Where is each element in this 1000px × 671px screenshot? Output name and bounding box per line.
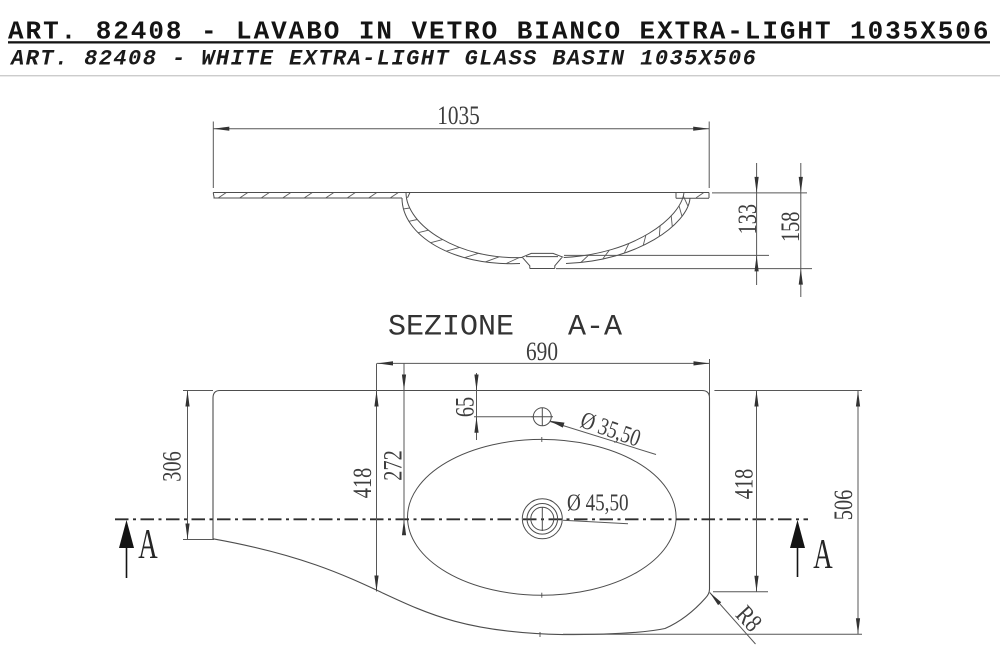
svg-text:Ø 45,50: Ø 45,50 xyxy=(567,488,629,516)
svg-text:SEZIONE A-A: SEZIONE A-A xyxy=(388,311,622,345)
svg-text:ART. 82408 - WHITE EXTRA-LIGHT: ART. 82408 - WHITE EXTRA-LIGHT GLASS BAS… xyxy=(9,47,757,72)
svg-text:A: A xyxy=(813,531,833,577)
svg-text:133: 133 xyxy=(734,204,763,234)
svg-text:306: 306 xyxy=(158,451,187,481)
svg-text:A: A xyxy=(138,521,158,567)
svg-text:272: 272 xyxy=(379,450,408,480)
svg-text:506: 506 xyxy=(830,490,859,520)
svg-text:1035: 1035 xyxy=(437,102,480,130)
svg-text:65: 65 xyxy=(451,397,480,417)
svg-text:418: 418 xyxy=(730,469,759,499)
svg-text:690: 690 xyxy=(526,338,558,366)
svg-text:158: 158 xyxy=(777,212,806,242)
svg-text:418: 418 xyxy=(349,468,378,498)
